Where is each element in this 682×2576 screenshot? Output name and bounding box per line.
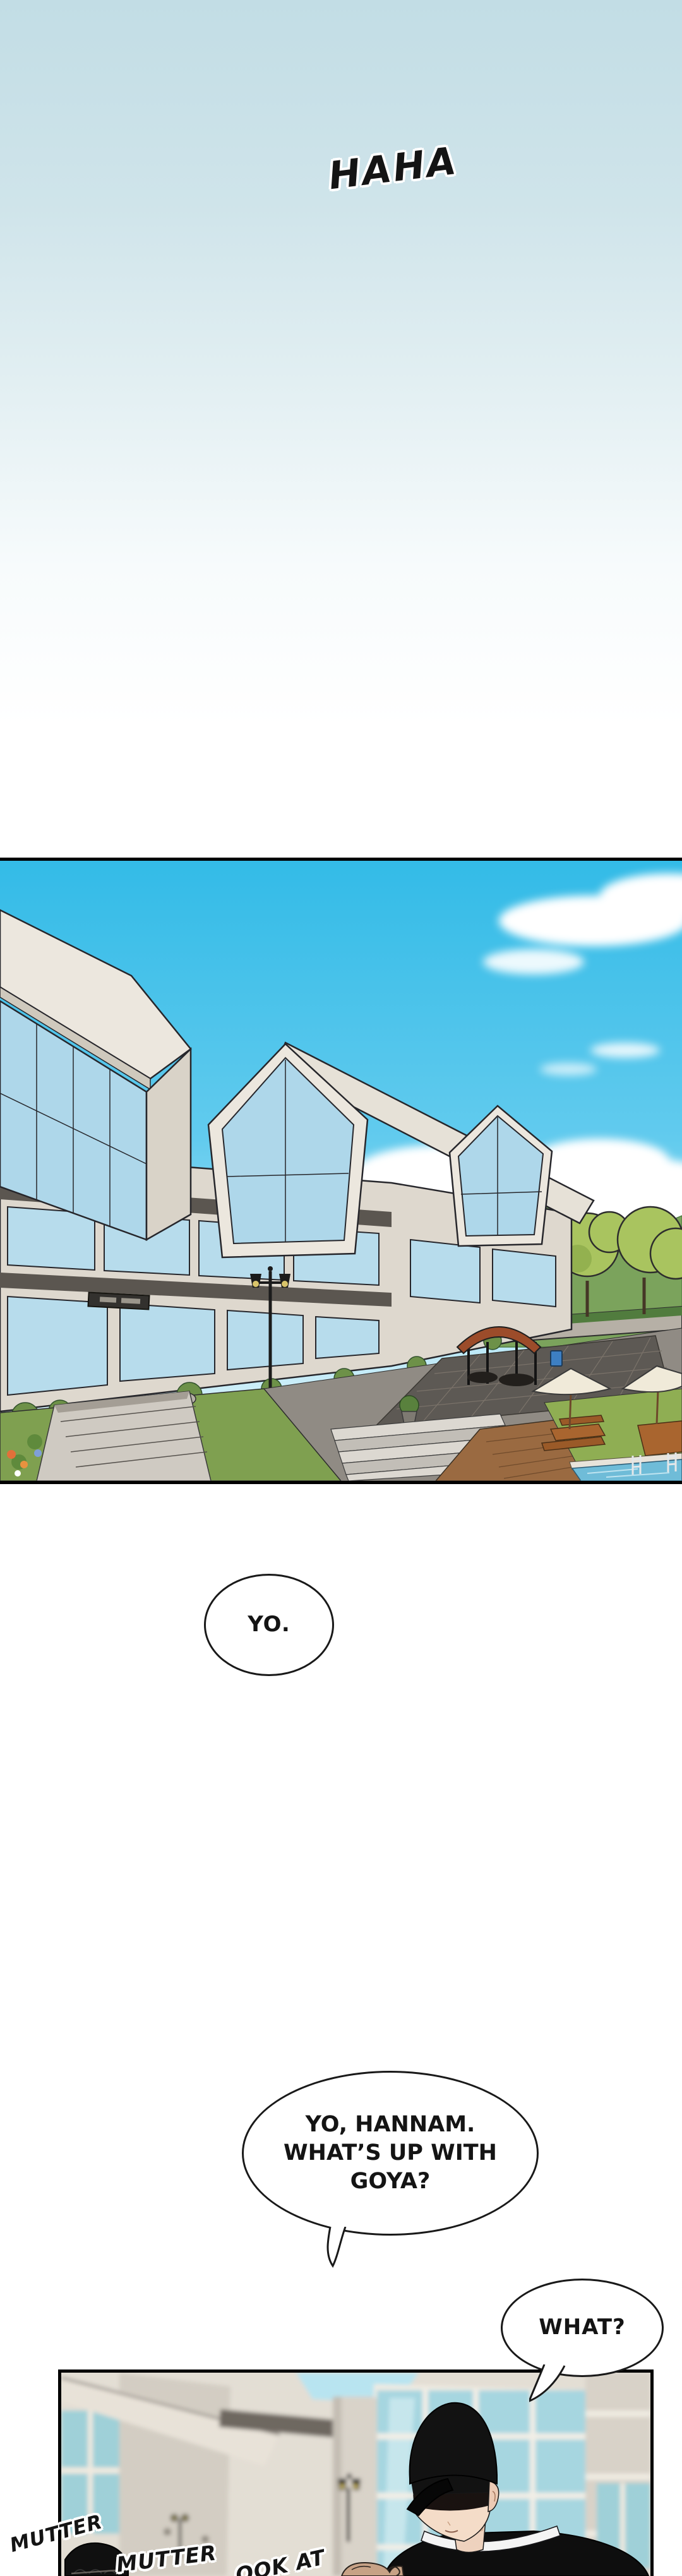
picnic-table-2 [638, 1421, 682, 1456]
left-staircase [37, 1391, 211, 1481]
speech-bubble-yo: YO. [204, 1574, 334, 1676]
bubble-hannam-line1: YO, HANNAM. [306, 2112, 476, 2137]
top-sky-gradient [0, 0, 682, 726]
bubble-what-text: WHAT? [539, 2314, 626, 2342]
bubble-hannam-text: YO, HANNAM. WHAT’S UP WITH GOYA? [284, 2111, 497, 2195]
building-sign [88, 1293, 149, 1310]
panel-resort-view [0, 858, 682, 1484]
speech-bubble-what: WHAT? [501, 2279, 664, 2377]
speech-bubble-hannam: YO, HANNAM. WHAT’S UP WITH GOYA? [242, 2071, 539, 2236]
bubble-hannam-line3: GOYA? [350, 2169, 431, 2194]
bubble-yo-text: YO. [248, 1611, 290, 1639]
trash-bin [551, 1351, 562, 1366]
bubble-hannam-tail [325, 2227, 348, 2268]
bubble-hannam-line2: WHAT’S UP WITH [284, 2140, 497, 2166]
webtoon-page: HAHA [0, 0, 682, 2576]
bubble-what-tail [529, 2364, 586, 2405]
resort-illustration [0, 861, 682, 1481]
